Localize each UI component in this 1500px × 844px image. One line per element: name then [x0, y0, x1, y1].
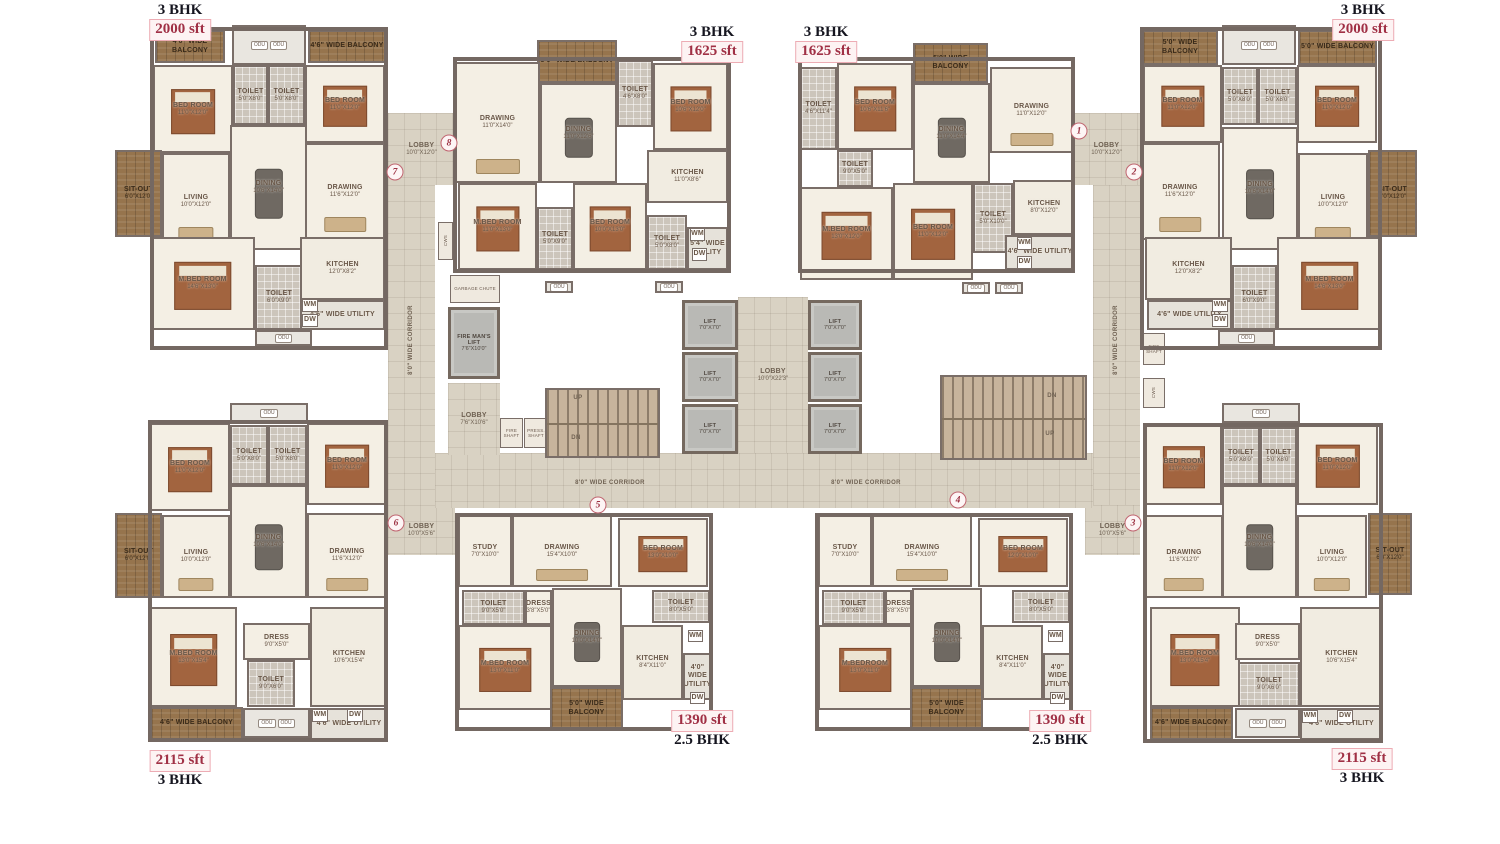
room-name-label: WM: [689, 632, 702, 640]
room-name-label: KITCHEN: [1325, 650, 1358, 658]
room-dimensions-label: 15'4"X10'0": [907, 552, 938, 559]
room-name-label: TOILET: [841, 600, 867, 608]
room-kitchen: KITCHEN12'0"X8'2": [1145, 237, 1232, 300]
room-dimensions-label: 5'0"X10'0": [979, 219, 1006, 226]
room-4-6-wide-utility: 4'6" WIDE UTILITY: [1005, 235, 1075, 270]
room-name-label: DINING: [574, 630, 600, 638]
room-drawing: DRAWING11'6"X12'0": [1140, 143, 1220, 240]
appliance-dw: DW: [692, 248, 707, 261]
odu-box: ODU: [251, 41, 268, 50]
room-dimensions-label: 10'0"X13'0": [595, 227, 626, 234]
room-name-label: BED ROOM: [1317, 97, 1357, 105]
room-name-label: TOILET: [654, 235, 680, 243]
room-toilet: TOILET6'0"X9'0": [1232, 265, 1277, 330]
room-name-label: KITCHEN: [326, 261, 359, 269]
room-dimensions-label: 11'0"X12'0": [1016, 111, 1046, 118]
room-name-label: 4'6" WIDE BALCONY: [311, 42, 384, 50]
room-name-label: BED ROOM: [170, 460, 210, 468]
room-name-label: DRAWING: [544, 544, 579, 552]
bhk-label: 3 BHK: [681, 24, 743, 41]
room-dimensions-label: 13'0"X10'0": [648, 553, 679, 560]
room-dimensions-label: 6'0"X9'0": [1243, 298, 1267, 305]
room-bed-room: BED ROOM11'0"X12'0": [893, 183, 973, 280]
odu-box: ODU: [1252, 409, 1269, 418]
room-dimensions-label: 11'0"X12'6": [563, 134, 593, 141]
room-dining: DINING10'6"X14'0": [230, 125, 307, 250]
room-dimensions-label: 11'6"X12'0": [332, 556, 362, 563]
room-name-label: DRAWING: [1014, 103, 1049, 111]
area-sft-label: 1390 sft: [671, 710, 733, 732]
room-dimensions-label: 10'0"X12'0": [181, 557, 212, 564]
room-name-label: LOBBY: [1094, 142, 1120, 150]
lift-lift: LIFT7'0"X7'0": [682, 352, 738, 402]
appliance-dw: DW: [1337, 710, 1353, 723]
room-name-label: DRAWING: [480, 115, 515, 123]
room-name-label: WM: [1214, 301, 1227, 309]
odu-unit: ODUODU: [243, 708, 310, 738]
room-name-label: TOILET: [806, 101, 832, 109]
room-name-label: BED ROOM: [1162, 97, 1202, 105]
room-dimensions-label: 7'6"X10'0": [462, 346, 487, 352]
room-dimensions-label: 13'0"X15'4": [178, 658, 209, 665]
furniture-sofa-icon: [326, 578, 368, 591]
room-name-label: TOILET: [842, 161, 868, 169]
room-name-label: LIVING: [1320, 549, 1345, 557]
stair-direction-label: UP: [573, 395, 582, 401]
area-sit-out: SIT-OUT6'0"X12'0": [115, 513, 162, 598]
room-dimensions-label: 14'6"X13'0": [1314, 284, 1345, 291]
room-dimensions-label: 10'6"X14'0": [1244, 542, 1275, 549]
room-dimensions-label: 10'6"X15'4": [334, 658, 365, 665]
unit-number-badge: 8: [441, 135, 458, 152]
room-toilet: TOILET4'6"X8'0": [617, 60, 653, 127]
room-dimensions-label: 8'0"X5'0": [669, 607, 693, 614]
room-dimensions-label: 13'0"X15'4": [1180, 658, 1211, 665]
room-dimensions-label: 10'0"X12'0": [1318, 202, 1349, 209]
room-name-label: DINING: [934, 630, 960, 638]
room-dimensions-label: 9'0"X5'0": [265, 642, 289, 649]
room-name-label: M.BED ROOM: [1305, 276, 1353, 284]
room-name-label: WM: [314, 711, 327, 719]
room-name-label: LOBBY: [760, 368, 786, 376]
room-name-label: TOILET: [266, 290, 292, 298]
odu-box: ODU: [278, 719, 295, 728]
area-sit-out: SIT-OUT6'0"X12'0": [1368, 513, 1412, 595]
room-dimensions-label: 12'0"X8'2": [329, 269, 356, 276]
room-living: LIVING10'0"X12'0": [1297, 515, 1367, 598]
area-tag: 3 BHK1625 sft: [681, 24, 743, 63]
room-name-label: 5'0" WIDE BALCONY: [1144, 39, 1216, 55]
area-5-0-wide-balcony: 5'0" WIDE BALCONY: [550, 687, 623, 730]
room-toilet: TOILET5'0"X8'0": [647, 215, 687, 270]
room-name-label: SIT-OUT: [124, 186, 153, 194]
shaft-fire-shaft: FIRE SHAFT: [500, 418, 523, 448]
room-name-label: BED ROOM: [670, 99, 710, 107]
area-tag: 2115 sft3 BHK: [1332, 748, 1393, 787]
room-dimensions-label: 11'6"X12'0": [1169, 557, 1199, 564]
room-dimensions-label: 5'0"X8'0": [275, 96, 299, 103]
room-toilet: TOILET9'0"X5'0": [837, 150, 873, 187]
room-drawing: DRAWING15'4"X10'0": [512, 515, 612, 587]
unit-number-badge: 4: [950, 492, 967, 509]
odu-unit: ODU: [230, 403, 308, 423]
room-name-label: DW: [691, 694, 703, 702]
room-name-label: BED ROOM: [1003, 545, 1043, 553]
room-name-label: SIT-OUT: [124, 548, 153, 556]
unit-number-badge: 3: [1125, 515, 1142, 532]
room-dimensions-label: 10'0"X14'0": [572, 638, 603, 645]
room-dimensions-label: 10'6"X15'4": [1326, 658, 1357, 665]
odu-box: ODU: [258, 719, 275, 728]
room-name-label: TOILET: [1242, 290, 1268, 298]
room-dimensions-label: 9'0"X6'0": [1257, 685, 1281, 692]
lift-fire-man-s-lift: FIRE MAN'S LIFT7'6"X10'0": [448, 307, 500, 379]
area-tag: 3 BHK2000 sft: [1332, 2, 1394, 41]
room-name-label: SIT-OUT: [1378, 186, 1407, 194]
room-dimensions-label: 11'0"X12'0": [1322, 465, 1352, 472]
room-dimensions-label: 7'0"X7'0": [824, 377, 846, 383]
room-name-label: SIT-OUT: [1375, 547, 1404, 555]
room-drawing: DRAWING11'6"X12'0": [1145, 515, 1223, 598]
room-name-label: CWS: [443, 235, 448, 246]
room-name-label: TOILET: [1227, 89, 1253, 97]
room-name-label: DINING: [1247, 181, 1273, 189]
room-dimensions-label: 11'0"X12'0": [332, 465, 362, 472]
area-sit-out: SIT-OUT6'0"X12'0": [1368, 150, 1417, 237]
area-tag: 3 BHK1625 sft: [795, 24, 857, 63]
appliance-dw: DW: [1050, 692, 1065, 704]
unit-number-badge: 5: [590, 497, 607, 514]
odu-unit: ODU: [545, 281, 573, 293]
room-dimensions-label: 13'0"X12'0": [831, 234, 862, 241]
room-name-label: DINING: [939, 126, 965, 134]
room-name-label: 4'6" WIDE BALCONY: [1155, 719, 1228, 727]
room-m-bed-room: M.BED ROOM13'0"X11'0": [458, 625, 552, 710]
room-drawing: DRAWING11'0"X14'0": [455, 62, 540, 183]
room-kitchen: KITCHEN8'4"X11'0": [622, 625, 683, 700]
furniture-sofa-icon: [475, 159, 519, 174]
room-name-label: M.BED ROOM: [178, 276, 226, 284]
room-kitchen: KITCHEN8'0"X12'0": [1013, 180, 1075, 235]
room-name-label: BED ROOM: [643, 545, 683, 553]
room-name-label: WM: [691, 230, 704, 238]
room-dimensions-label: 12'0"X10'0": [1008, 553, 1039, 560]
room-name-label: FIRE SHAFT: [501, 428, 522, 438]
room-dress: DRESS9'0"X5'0": [243, 623, 310, 660]
room-name-label: 4'6" WIDE BALCONY: [157, 38, 223, 54]
room-name-label: M.BED ROOM: [822, 226, 870, 234]
room-bed-room: BED ROOM11'0"X12'0": [150, 423, 230, 511]
room-living: LIVING10'0"X12'0": [162, 515, 230, 598]
room-name-label: DRESS: [1255, 634, 1280, 642]
area-4-6-wide-balcony: 4'6" WIDE BALCONY: [150, 707, 243, 740]
room-bed-room: BED ROOM11'0"X12'0": [1297, 65, 1377, 143]
room-m-bed-room: M.BED ROOM13'0"X15'4": [150, 607, 237, 707]
room-name-label: WM: [1304, 712, 1317, 720]
room-dimensions-label: 9'0"X6'0": [259, 684, 283, 691]
odu-box: ODU: [275, 334, 292, 343]
room-dimensions-label: 11'0"X12'0": [330, 105, 360, 112]
room-name-label: 5'0" WIDE BALCONY: [552, 700, 621, 716]
room-name-label: M.BED ROOM: [473, 219, 521, 227]
room-name-label: DINING: [256, 534, 282, 542]
lift-lift: LIFT7'0"X7'0": [808, 404, 862, 454]
odu-box: ODU: [1238, 334, 1255, 343]
room-dimensions-label: 11'0"X12'0": [1167, 105, 1197, 112]
stair-direction-label: UP: [1045, 431, 1054, 437]
room-toilet: TOILET8'0"X5'0": [1012, 590, 1070, 623]
room-name-label: DW: [693, 250, 705, 258]
bhk-label: 3 BHK: [795, 24, 857, 41]
room-toilet: TOILET9'0"X5'0": [822, 590, 885, 625]
area-sft-label: 2000 sft: [1332, 19, 1394, 41]
room-dimensions-label: 9'0"X5'0": [482, 608, 506, 615]
room-dimensions-label: 6'0"X12'0": [1379, 194, 1406, 201]
room-dimensions-label: 10'0"X12'0": [1317, 557, 1348, 564]
furniture-sofa-icon: [1159, 217, 1201, 232]
room-dimensions-label: 8'4"X11'0": [639, 663, 666, 670]
room-dimensions-label: 8'4"X11'0": [999, 663, 1026, 670]
room-m-bed-room: M.BED ROOM11'0"X13'0": [458, 183, 537, 270]
area-tag: 3 BHK2000 sft: [149, 2, 211, 41]
room-bed-room: BED ROOM11'0"X12'0": [1145, 425, 1222, 505]
room-living: LIVING10'0"X12'0": [1298, 153, 1368, 250]
room-dimensions-label: 11'6"X12'0": [1165, 192, 1195, 199]
room-m-bed-room: M.BED ROOM14'6"X13'0": [1277, 237, 1382, 330]
room-name-label: LIVING: [1321, 194, 1346, 202]
corridor-label: 8'0" WIDE CORRIDOR: [408, 305, 414, 375]
appliance-dw: DW: [347, 709, 363, 722]
room-name-label: GARBAGE CHUTE: [454, 286, 496, 291]
room-name-label: DRESS: [264, 634, 289, 642]
room-name-label: M.BED ROOM: [481, 660, 529, 668]
area-5-0-wide-balcony: 5'0" WIDE BALCONY: [1142, 30, 1218, 65]
room-dimensions-label: 11'0"X12'0": [1322, 105, 1352, 112]
room-dimensions-label: 11'0"X14'0": [482, 123, 512, 130]
room-name-label: BED ROOM: [1163, 458, 1203, 466]
room-name-label: WM: [1018, 239, 1031, 247]
room-dimensions-label: 7'0"X7'0": [824, 429, 846, 435]
room-name-label: KITCHEN: [1028, 200, 1061, 208]
unit-number-badge: 7: [387, 164, 404, 181]
odu-box: ODU: [660, 283, 677, 292]
room-name-label: M.BED ROOM: [1171, 650, 1219, 658]
shaft-cws: CWS: [438, 222, 453, 260]
room-toilet: TOILET8'0"X5'0": [652, 590, 710, 623]
room-bed-room: BED ROOM10'6"X11'6": [837, 63, 913, 150]
odu-unit: ODU: [1218, 330, 1275, 346]
room-bed-room: BED ROOM12'0"X10'0": [978, 518, 1068, 587]
room-dimensions-label: 4'6"X11'4": [805, 109, 832, 116]
room-dimensions-label: 10'0"X12'0": [181, 202, 212, 209]
room-dimensions-label: 7'6"X10'6": [460, 420, 487, 427]
area-5-0-wide-balcony: 5'0" WIDE BALCONY: [537, 40, 617, 83]
odu-box: ODU: [260, 409, 277, 418]
odu-box: ODU: [550, 283, 567, 292]
room-kitchen: KITCHEN8'4"X11'0": [982, 625, 1043, 700]
floor-plan: 4'6" WIDE BALCONYODUODU4'6" WIDE BALCONY…: [0, 0, 1500, 844]
room-name-label: DW: [349, 711, 361, 719]
room-name-label: LIVING: [184, 194, 209, 202]
room-dimensions-label: 5'0"X8'0": [1267, 457, 1291, 464]
room-name-label: DINING: [1247, 534, 1273, 542]
room-toilet: TOILET5'0"X8'0": [268, 425, 307, 485]
room-name-label: DW: [1018, 258, 1030, 266]
stairs: [940, 375, 1087, 460]
room-dress: DRESS9'0"X5'0": [1235, 623, 1300, 660]
room-dimensions-label: 8'0"X12'0": [1030, 208, 1057, 215]
room-dimensions-label: 5'0"X8'0": [1229, 457, 1253, 464]
room-dimensions-label: 10'0"X14'0": [932, 638, 963, 645]
appliance-dw: DW: [1212, 314, 1228, 327]
room-dimensions-label: 13'0"X11'0": [850, 668, 880, 675]
room-name-label: LOBBY: [409, 523, 435, 531]
area-sft-label: 2115 sft: [1332, 748, 1393, 770]
room-dimensions-label: 10'6"X14'0": [253, 542, 284, 549]
room-name-label: M.BEDROOM: [842, 660, 888, 668]
room-name-label: TOILET: [274, 88, 300, 96]
room-name-label: BED ROOM: [855, 99, 895, 107]
room-kitchen: KITCHEN10'6"X15'4": [1300, 607, 1383, 707]
room-name-label: BED ROOM: [590, 219, 630, 227]
room-name-label: DW: [1339, 712, 1351, 720]
room-name-label: 4'6" WIDE UTILITY: [310, 311, 375, 319]
furniture-sofa-icon: [1010, 133, 1053, 146]
room-name-label: DRESS: [886, 600, 911, 608]
room-name-label: TOILET: [1028, 599, 1054, 607]
room-toilet: TOILET9'0"X6'0": [247, 660, 295, 707]
area-tag: 1390 sft2.5 BHK: [671, 710, 733, 749]
stairs: [545, 388, 660, 458]
room-name-label: LOBBY: [461, 412, 487, 420]
room-dimensions-label: 6'0"X12'0": [1376, 555, 1403, 562]
furniture-sofa-icon: [1164, 578, 1204, 591]
room-kitchen: KITCHEN12'0"X8'2": [300, 237, 385, 300]
room-name-label: DRAWING: [1162, 184, 1197, 192]
room-dimensions-label: 11'6"X12'0": [330, 192, 360, 199]
room-study: STUDY7'0"X10'0": [818, 515, 872, 587]
room-drawing: DRAWING11'6"X12'0": [307, 513, 387, 598]
room-name-label: LIVING: [184, 549, 209, 557]
room-name-label: LOBBY: [409, 142, 435, 150]
room-name-label: KITCHEN: [636, 655, 669, 663]
room-name-label: CWS: [1151, 387, 1156, 398]
room-name-label: DINING: [256, 180, 282, 188]
room-dimensions-label: 5'0"X8'0": [239, 96, 263, 103]
room-m-bed-room: M.BED ROOM14'6"X13'0": [150, 237, 255, 330]
room-toilet: TOILET4'6"X11'4": [800, 67, 837, 150]
room-name-label: DINING: [566, 126, 592, 134]
area-4-6-wide-balcony: 4'6" WIDE BALCONY: [1150, 707, 1233, 740]
room-dimensions-label: 11'0"X14'4": [936, 134, 966, 141]
room-dimensions-label: 11'0"X12'0": [1168, 466, 1198, 473]
room-dimensions-label: 10'0"X12'0": [1091, 150, 1122, 157]
room-dining: DINING10'6"X14'0": [1222, 127, 1298, 250]
room-dining: DINING11'0"X14'4": [913, 83, 990, 183]
room-name-label: WM: [304, 301, 317, 309]
corridor-label: 8'0" WIDE CORRIDOR: [1113, 305, 1119, 375]
room-name-label: DRAWING: [904, 544, 939, 552]
room-dimensions-label: 10'0"X12'0": [406, 150, 437, 157]
room-toilet: TOILET5'0"X8'0": [1222, 427, 1260, 485]
room-dress: DRESS3'8"X5'0": [885, 590, 912, 625]
room-name-label: TOILET: [1256, 677, 1282, 685]
room-name-label: WM: [1049, 632, 1062, 640]
room-dining: DINING10'6"X14'0": [1222, 485, 1297, 598]
room-toilet: TOILET5'0"X8'0": [268, 65, 305, 125]
room-dining: DINING10'6"X14'0": [230, 485, 307, 598]
unit-number-badge: 2: [1126, 164, 1143, 181]
room-dimensions-label: 13'0"X11'0": [490, 668, 520, 675]
room-name-label: PRESS. SHAFT: [525, 428, 547, 438]
room-bed-room: BED ROOM11'0"X12'0": [1297, 423, 1378, 505]
room-dimensions-label: 9'0"X5'0": [842, 608, 866, 615]
odu-box: ODU: [1269, 719, 1286, 728]
room-name-label: TOILET: [1228, 449, 1254, 457]
room-drawing: DRAWING15'4"X10'0": [872, 515, 972, 587]
room-toilet: TOILET5'0"X8'0": [1258, 67, 1297, 125]
room-living: LIVING10'0"X12'0": [162, 153, 230, 250]
furniture-sofa-icon: [896, 569, 948, 581]
room-dimensions-label: 5'0"X9'0": [543, 239, 567, 246]
appliance-wm: WM: [1302, 710, 1318, 723]
furniture-sofa-icon: [536, 569, 588, 581]
room-drawing: DRAWING11'0"X12'0": [990, 67, 1073, 153]
room-name-label: FIRE SHAFT: [1144, 344, 1164, 354]
room-dimensions-label: 15'4"X10'0": [547, 552, 578, 559]
room-dimensions-label: 11'0"X12'0": [175, 468, 205, 475]
furniture-sofa-icon: [324, 217, 366, 232]
room-toilet: TOILET5'0"X8'0": [230, 425, 268, 485]
bhk-label: 3 BHK: [1332, 770, 1393, 787]
room-name-label: M.BED ROOM: [169, 650, 217, 658]
room-m-bed-room: M.BED ROOM13'0"X15'4": [1150, 607, 1240, 707]
room-kitchen: KITCHEN10'6"X15'4": [310, 607, 388, 707]
room-name-label: STUDY: [833, 544, 858, 552]
odu-unit: ODU: [962, 282, 990, 294]
room-name-label: BED ROOM: [173, 102, 213, 110]
area-tag: 2115 sft3 BHK: [150, 750, 211, 789]
appliance-wm: WM: [312, 709, 328, 722]
corridor-label: 8'0" WIDE CORRIDOR: [831, 480, 901, 486]
area-sft-label: 2000 sft: [149, 19, 211, 41]
bhk-label: 3 BHK: [150, 772, 211, 789]
room-name-label: KITCHEN: [333, 650, 366, 658]
room-bed-room: BED ROOM11'0"X12'0": [153, 65, 233, 153]
room-dimensions-label: 7'0"X7'0": [699, 429, 721, 435]
room-name-label: TOILET: [668, 599, 694, 607]
room-drawing: DRAWING11'6"X12'0": [305, 143, 385, 240]
odu-unit: ODU: [655, 281, 683, 293]
room-name-label: KITCHEN: [1172, 261, 1205, 269]
stair-direction-label: DN: [571, 435, 580, 441]
odu-unit: ODUODU: [1235, 708, 1300, 738]
shaft-cws: CWS: [1143, 378, 1165, 408]
room-dimensions-label: 12'0"X8'2": [1175, 269, 1202, 276]
room-dimensions-label: 7'0"X7'0": [699, 325, 721, 331]
bhk-label: 3 BHK: [1332, 2, 1394, 19]
appliance-wm: WM: [1048, 630, 1063, 642]
room-dimensions-label: 10'0"X5'6": [408, 531, 435, 538]
odu-box: ODU: [1000, 284, 1017, 293]
lift-lift: LIFT7'0"X7'0": [808, 352, 862, 402]
room-name-label: FIRE MAN'S LIFT: [451, 334, 497, 347]
area-5-0-wide-balcony: 5'0" WIDE BALCONY: [913, 43, 988, 83]
odu-box: ODU: [1249, 719, 1266, 728]
lift-lift: LIFT7'0"X7'0": [682, 404, 738, 454]
room-dimensions-label: 4'6"X8'0": [623, 94, 647, 101]
lobby-lobby: LOBBY10'0"X22'3": [738, 297, 808, 453]
